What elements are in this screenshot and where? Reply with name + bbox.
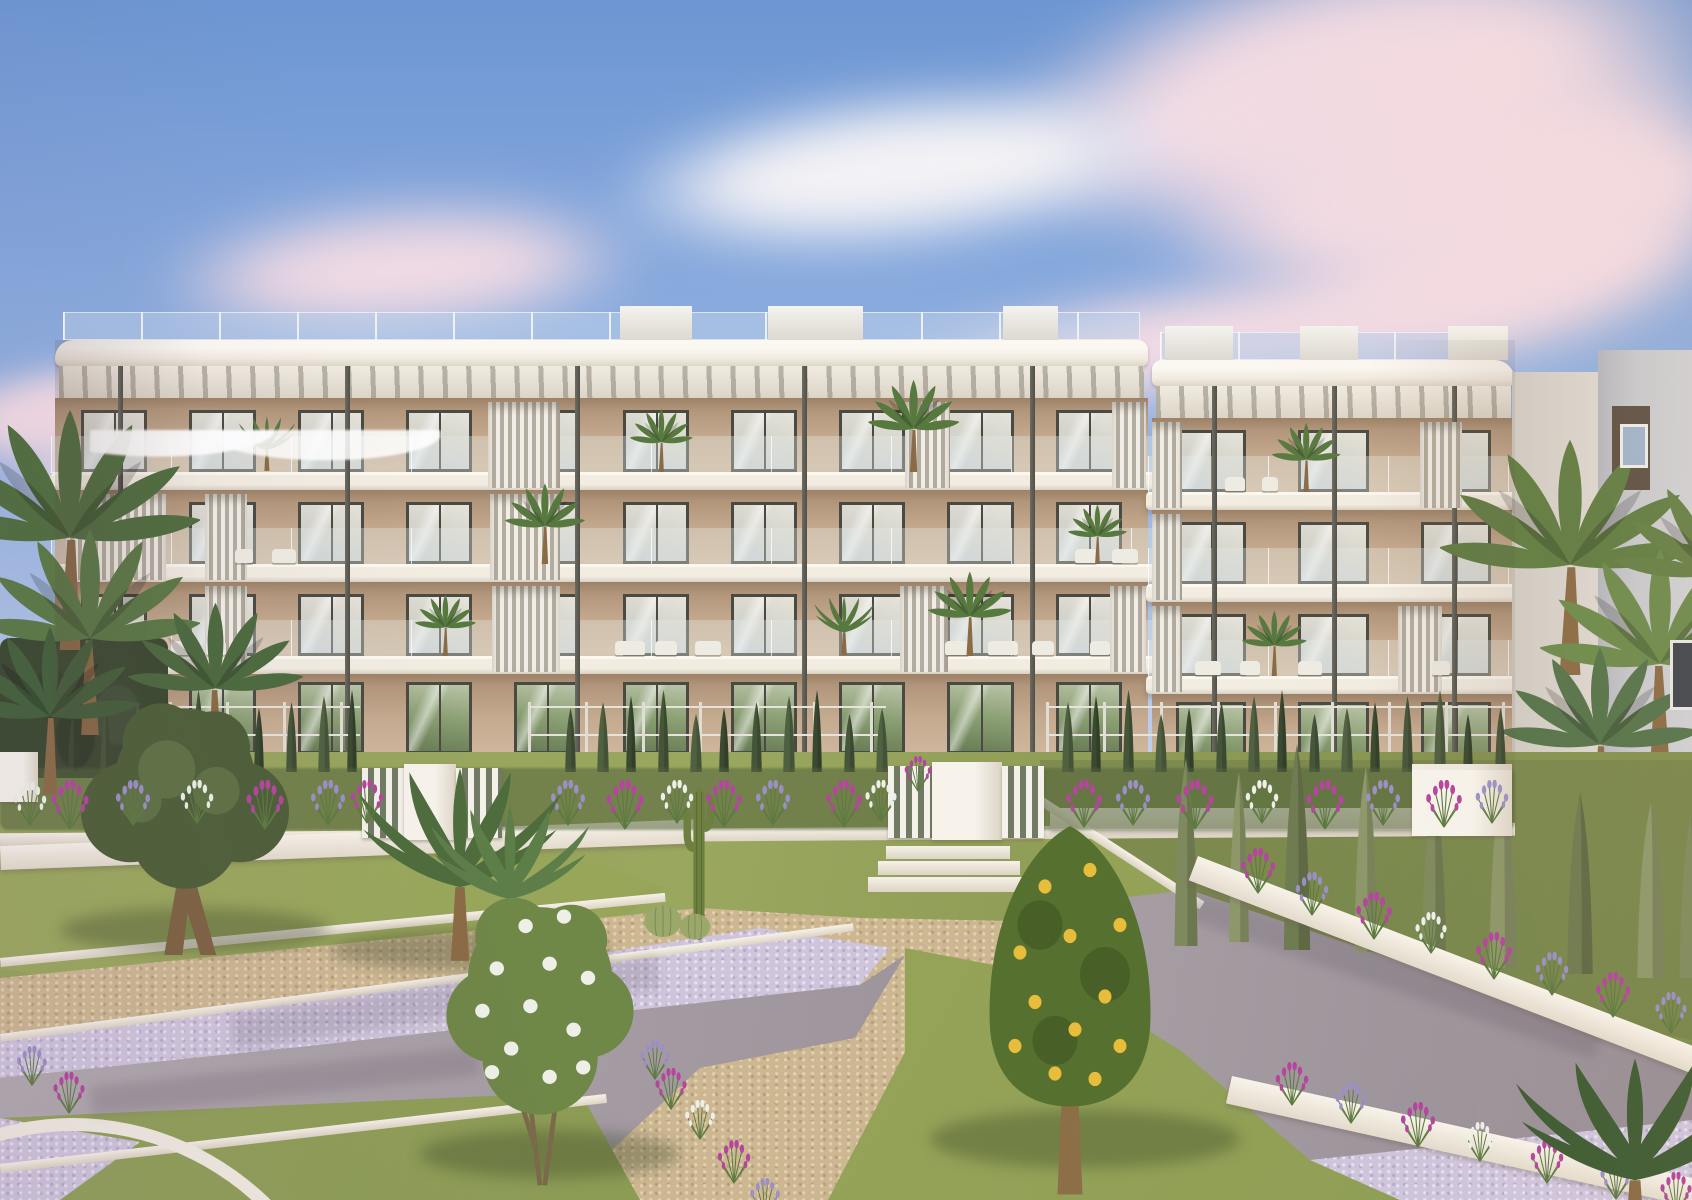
balcony-plant [1418, 628, 1464, 676]
hedge-cone [864, 708, 900, 772]
flower-cluster [1460, 1122, 1500, 1162]
roof-box [1300, 326, 1358, 360]
flower-cluster [1470, 780, 1514, 824]
roof-box [1003, 306, 1058, 340]
balcony-furniture [615, 641, 645, 655]
flower-cluster [1650, 992, 1692, 1034]
balcony-plant [505, 480, 585, 564]
balcony-plant [1242, 608, 1307, 676]
flower-cluster [48, 1072, 90, 1114]
flower-cluster [1330, 1082, 1372, 1124]
balcony-furniture [235, 549, 253, 563]
rooftop-glass-railing [63, 312, 1140, 340]
hedge-cone [740, 702, 773, 772]
flower-cluster [1170, 780, 1220, 830]
hedge-cone [833, 714, 866, 772]
hedge-cone [1391, 696, 1424, 772]
flower-cluster [12, 1046, 52, 1086]
flower-cluster [1420, 780, 1468, 828]
flower-cluster [45, 780, 95, 830]
balcony-plant [415, 592, 476, 656]
balcony-furniture [655, 641, 677, 655]
flower-cluster [1530, 952, 1574, 996]
window-mullion [547, 685, 549, 751]
flower-cluster [750, 780, 796, 826]
balcony-plant [1178, 448, 1220, 492]
louver-screen [1152, 514, 1182, 600]
flower-cluster [860, 780, 902, 822]
balcony-plant [1272, 420, 1340, 492]
louver-screen [1152, 606, 1182, 692]
hedge-cone [616, 696, 646, 772]
flower-cluster [680, 1100, 720, 1140]
window [406, 682, 472, 754]
flower-cluster [900, 756, 936, 792]
palm-fronds [1500, 1050, 1692, 1200]
hedge-cone [1081, 696, 1111, 772]
rendered-scene [0, 0, 1692, 1200]
window-mullion [981, 685, 983, 751]
balcony-furniture [1032, 641, 1054, 655]
balcony-plant [1400, 538, 1444, 584]
lemon-tree [945, 815, 1195, 1200]
balcony-furniture [695, 641, 721, 655]
flower-cluster [240, 780, 290, 830]
roof-box [768, 306, 863, 340]
flower-cluster [1360, 780, 1406, 826]
louver-screen [488, 402, 560, 488]
pergola-fascia [1152, 360, 1515, 386]
flower-cluster [1410, 912, 1452, 954]
flowering-shrub [420, 860, 660, 1190]
flower-cluster [1235, 848, 1281, 894]
roof-box [1165, 326, 1233, 360]
flower-cluster [175, 780, 219, 824]
hedge-cone [1484, 708, 1517, 772]
neighbor-window [1620, 424, 1648, 468]
balcony-furniture [272, 549, 296, 563]
flower-cluster [1290, 872, 1334, 916]
flower-cluster [1590, 972, 1636, 1018]
flower-cluster [545, 780, 591, 826]
window-mullion [439, 685, 441, 751]
flower-cluster [1470, 932, 1518, 980]
column [1030, 366, 1035, 772]
flower-cluster [655, 780, 699, 824]
flower-cluster [345, 780, 389, 824]
balcony-glass-reflection [90, 430, 470, 470]
flower-cluster [745, 1178, 785, 1200]
balcony-plant [810, 594, 878, 656]
balcony-furniture [1225, 477, 1245, 491]
roof-box [620, 306, 692, 340]
flower-cluster [600, 780, 650, 830]
palm-tree [1615, 470, 1692, 660]
flower-cluster [1395, 1102, 1441, 1148]
hedge-cone [647, 690, 680, 772]
neighbor-window [1670, 640, 1692, 710]
flower-cluster [110, 780, 156, 826]
flower-cluster [1240, 780, 1284, 824]
pergola-fascia [55, 340, 1148, 366]
hedge-cone [709, 708, 739, 772]
louver-screen [205, 494, 247, 580]
flower-cluster [1110, 780, 1156, 826]
hedge-cone [802, 690, 832, 772]
balcony-furniture [1195, 661, 1221, 675]
roof-box [1448, 326, 1508, 360]
flower-cluster [1300, 780, 1350, 830]
balcony-plant [1072, 606, 1120, 656]
balcony-slab [49, 472, 1154, 490]
juniper [1655, 816, 1692, 978]
flower-cluster [1060, 780, 1108, 828]
balcony-plant [928, 568, 1012, 656]
window [947, 682, 1013, 754]
balcony-plant [630, 406, 693, 472]
flower-cluster [1350, 892, 1398, 940]
hedge-cone [1360, 702, 1390, 772]
hedge-cone [1112, 690, 1145, 772]
flower-cluster [700, 780, 748, 828]
balcony-plant [695, 514, 743, 564]
flower-cluster [1270, 1062, 1314, 1106]
balcony-plant [868, 376, 959, 472]
balcony-plant [545, 608, 591, 656]
louver-screen [1112, 402, 1146, 488]
balcony-plant [1068, 502, 1127, 564]
barrel-cactus [676, 908, 714, 942]
